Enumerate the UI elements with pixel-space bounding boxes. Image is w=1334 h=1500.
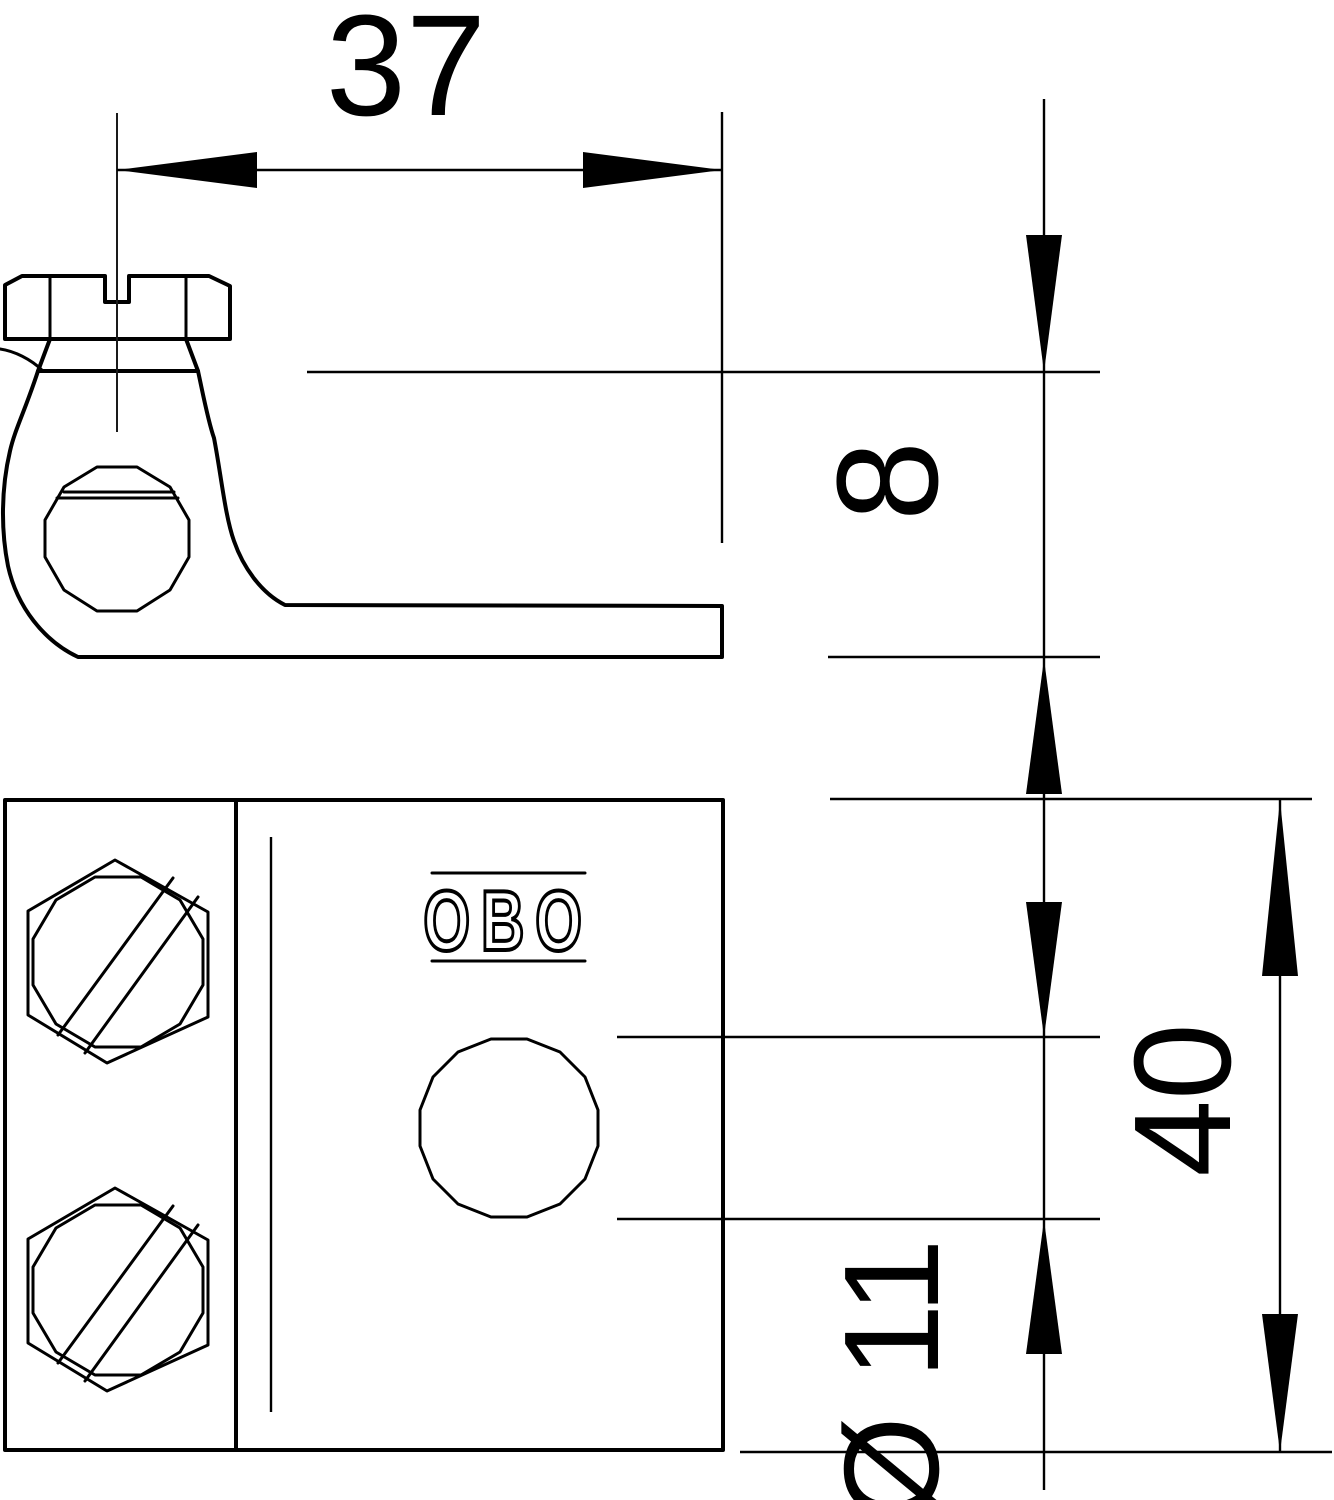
collar-edge xyxy=(0,349,43,371)
brand-stamp: OBO xyxy=(423,873,592,969)
arrowhead-right xyxy=(583,152,722,188)
dimension-clamp-height-8: 8 xyxy=(307,99,1100,1490)
dim-40-label: 40 xyxy=(1106,1023,1260,1177)
arrowhead-bottom xyxy=(1026,1220,1062,1354)
hex-head-outline xyxy=(28,1188,208,1391)
arrowhead-bottom xyxy=(1262,1314,1298,1452)
side-view xyxy=(0,113,722,657)
dimension-hole-diameter-11: Ø 11 xyxy=(617,902,1100,1500)
cable-hole xyxy=(420,1039,598,1217)
hex-screw-upper xyxy=(28,860,208,1063)
washer-neck-right xyxy=(186,339,198,371)
hex-head-outline xyxy=(28,860,208,1063)
hex-screw-lower xyxy=(28,1188,208,1391)
arrowhead-top xyxy=(1026,902,1062,1037)
screw-circle xyxy=(33,1205,203,1375)
dimension-drawing: OBO 37 8 Ø 11 40 xyxy=(0,0,1334,1500)
dim-37-label: 37 xyxy=(326,0,486,146)
dim-8-label: 8 xyxy=(807,441,968,521)
clamp-body-outline xyxy=(3,371,722,657)
screw-circle xyxy=(33,877,203,1047)
dimension-width-37: 37 xyxy=(117,0,722,543)
arrowhead-top xyxy=(1026,235,1062,372)
front-view: OBO xyxy=(5,800,723,1450)
clamp-hole-outline xyxy=(45,467,189,611)
body-outline xyxy=(5,800,723,1450)
arrowhead-top xyxy=(1262,800,1298,976)
drawing-canvas: OBO 37 8 Ø 11 40 xyxy=(0,0,1334,1500)
brand-logo-text: OBO xyxy=(423,873,592,969)
arrowhead-left xyxy=(117,152,257,188)
arrowhead-bottom xyxy=(1026,659,1062,794)
dim-diameter-label: Ø 11 xyxy=(816,1239,967,1500)
